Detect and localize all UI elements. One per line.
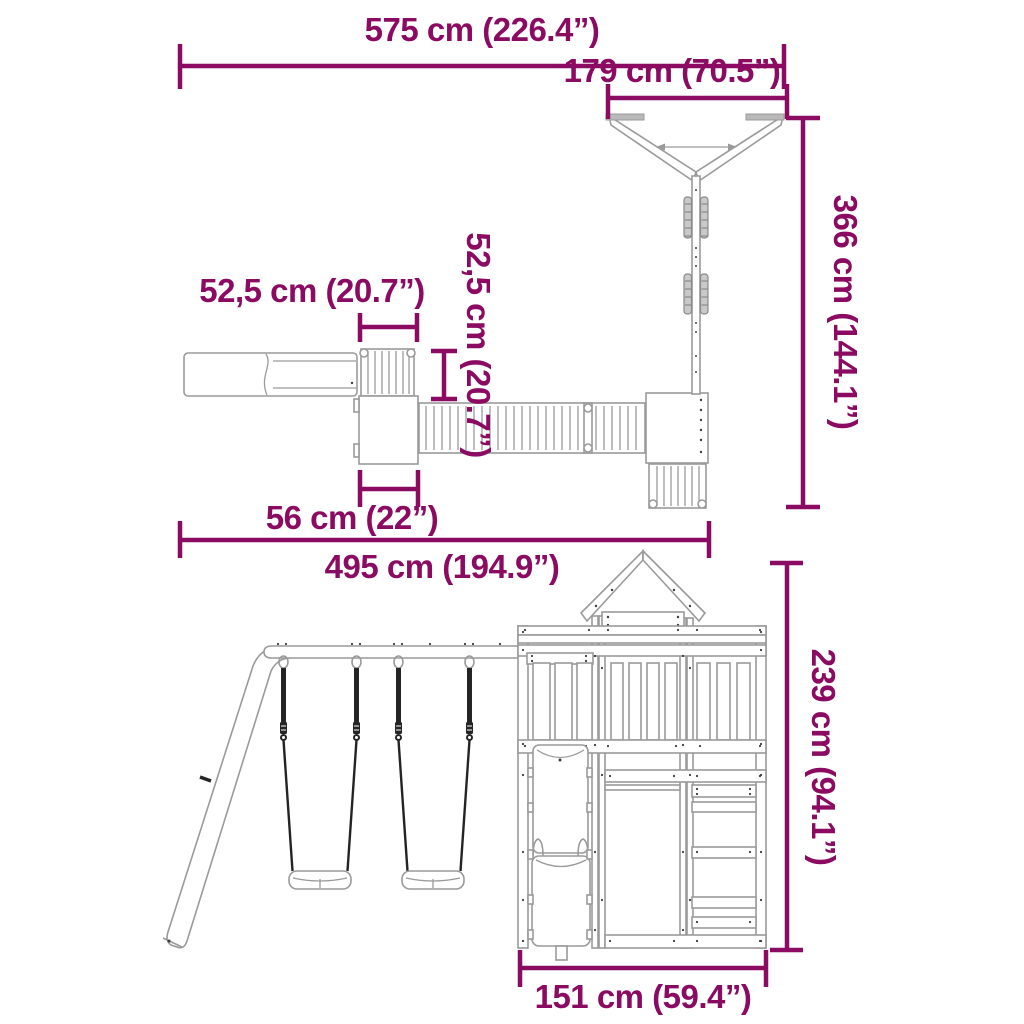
swing-leg (167, 646, 289, 948)
tower-balustrade (518, 663, 766, 753)
swing-direction-arrow (656, 144, 737, 151)
platform-1-plan (354, 396, 418, 464)
dim-label-platform-width: 56 cm (22”) (266, 499, 438, 536)
dim-label-climber-width: 52,5 cm (20.7”) (199, 272, 424, 309)
tower-front (518, 551, 766, 960)
swing-frame-plan (606, 114, 784, 394)
climber-plan (360, 349, 415, 396)
dim-label-swing-frame-width: 179 cm (70.5”) (564, 52, 781, 89)
diagram-canvas: 575 cm (226.4”) 179 cm (70.5”) 366 cm (1… (0, 0, 1024, 1024)
dim-label-swing-frame-depth: 366 cm (144.1”) (827, 195, 864, 430)
leg-clamp (200, 777, 211, 781)
platform-2-plan (646, 393, 708, 463)
ladder-plan (649, 464, 706, 508)
slide-plan (184, 353, 357, 396)
dim-platform-width: 56 cm (22”) (266, 470, 438, 536)
dim-tower-height: 239 cm (94.1”) (770, 563, 842, 950)
plan-view: 575 cm (226.4”) 179 cm (70.5”) 366 cm (1… (180, 11, 864, 585)
product-dimension-diagram: 575 cm (226.4”) 179 cm (70.5”) 366 cm (1… (0, 0, 1024, 1024)
swing-ropes (280, 668, 473, 871)
dim-label-tower-width: 151 cm (59.4”) (535, 978, 752, 1015)
tower-top-rails (518, 626, 766, 664)
beam-bolts (277, 643, 501, 645)
dim-swing-frame-width: 179 cm (70.5”) (564, 52, 787, 119)
dim-label-walkway-width: 52,5 cm (20.7”) (460, 232, 497, 457)
swing-seat-1 (289, 871, 351, 889)
dim-climber-width: 52,5 cm (20.7”) (199, 272, 424, 342)
tower-ladder-front (692, 785, 756, 928)
swing-seat-2 (402, 871, 464, 889)
swing-set-front (163, 643, 520, 948)
dim-label-tower-height: 239 cm (94.1”) (805, 649, 842, 866)
swing-beam (264, 646, 520, 658)
dim-label-overall-width: 575 cm (226.4”) (365, 11, 600, 48)
front-view: 239 cm (94.1”) 151 cm (59.4”) (163, 551, 842, 1015)
dim-swing-frame-depth: 366 cm (144.1”) (786, 118, 864, 507)
walkway-plan (419, 403, 645, 453)
slide-front (528, 745, 592, 960)
slide-foot (556, 946, 567, 960)
dim-label-play-structure-span: 495 cm (194.9”) (325, 548, 560, 585)
